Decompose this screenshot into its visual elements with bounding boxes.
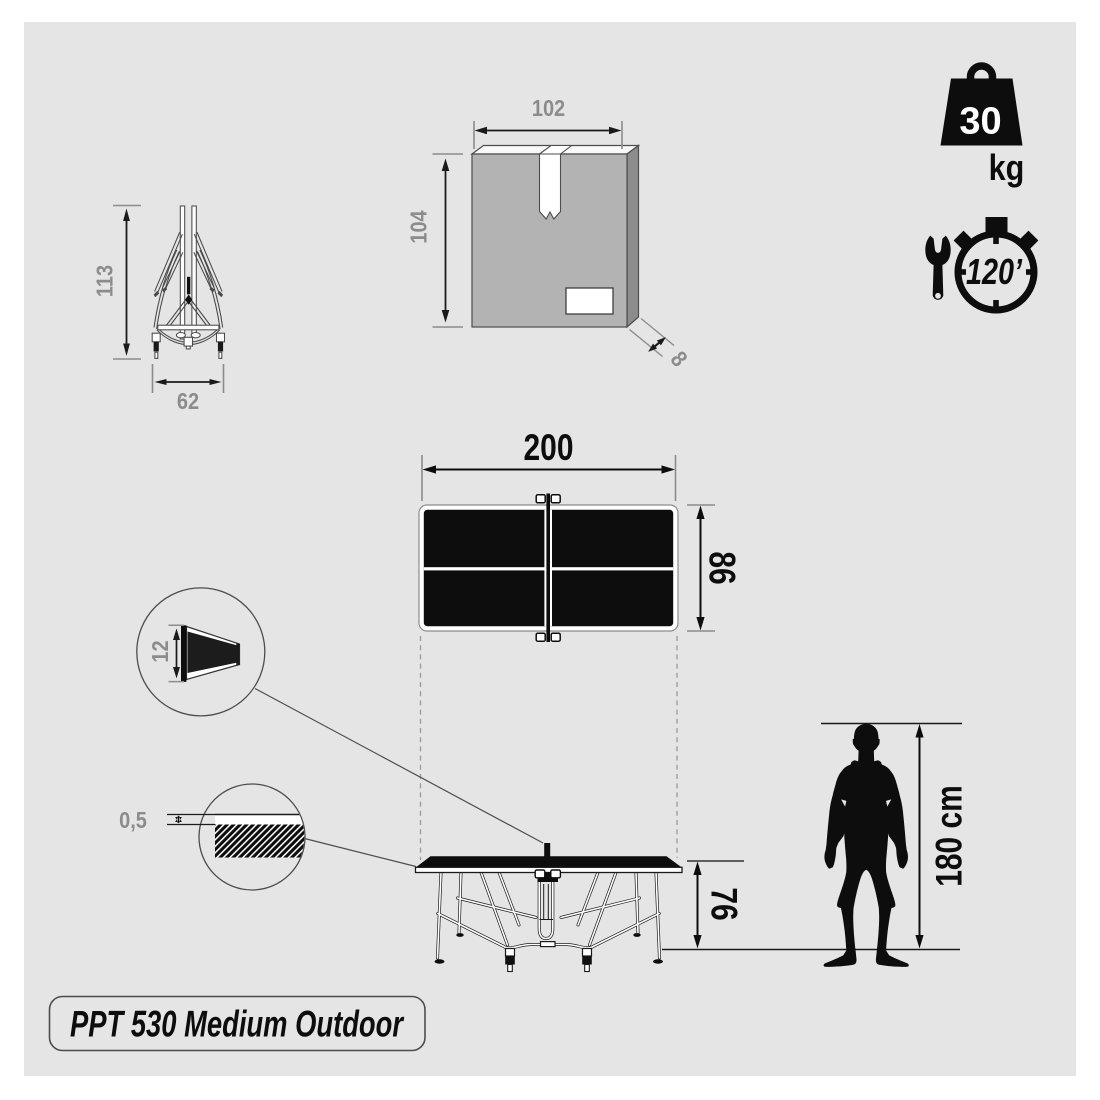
svg-text:104: 104 xyxy=(405,210,432,243)
svg-text:86: 86 xyxy=(701,551,742,584)
svg-text:kg: kg xyxy=(989,149,1025,189)
svg-text:180 cm: 180 cm xyxy=(930,785,971,887)
svg-text:113: 113 xyxy=(91,265,118,297)
svg-text:76: 76 xyxy=(703,887,744,920)
svg-text:PPT 530 Medium Outdoor: PPT 530 Medium Outdoor xyxy=(70,1004,405,1045)
svg-text:30: 30 xyxy=(959,101,1001,143)
svg-text:12: 12 xyxy=(146,640,173,662)
svg-text:120’: 120’ xyxy=(966,251,1023,292)
svg-text:200: 200 xyxy=(524,428,574,469)
svg-text:102: 102 xyxy=(532,94,565,121)
svg-text:62: 62 xyxy=(177,387,199,414)
svg-text:0,5: 0,5 xyxy=(119,806,147,833)
